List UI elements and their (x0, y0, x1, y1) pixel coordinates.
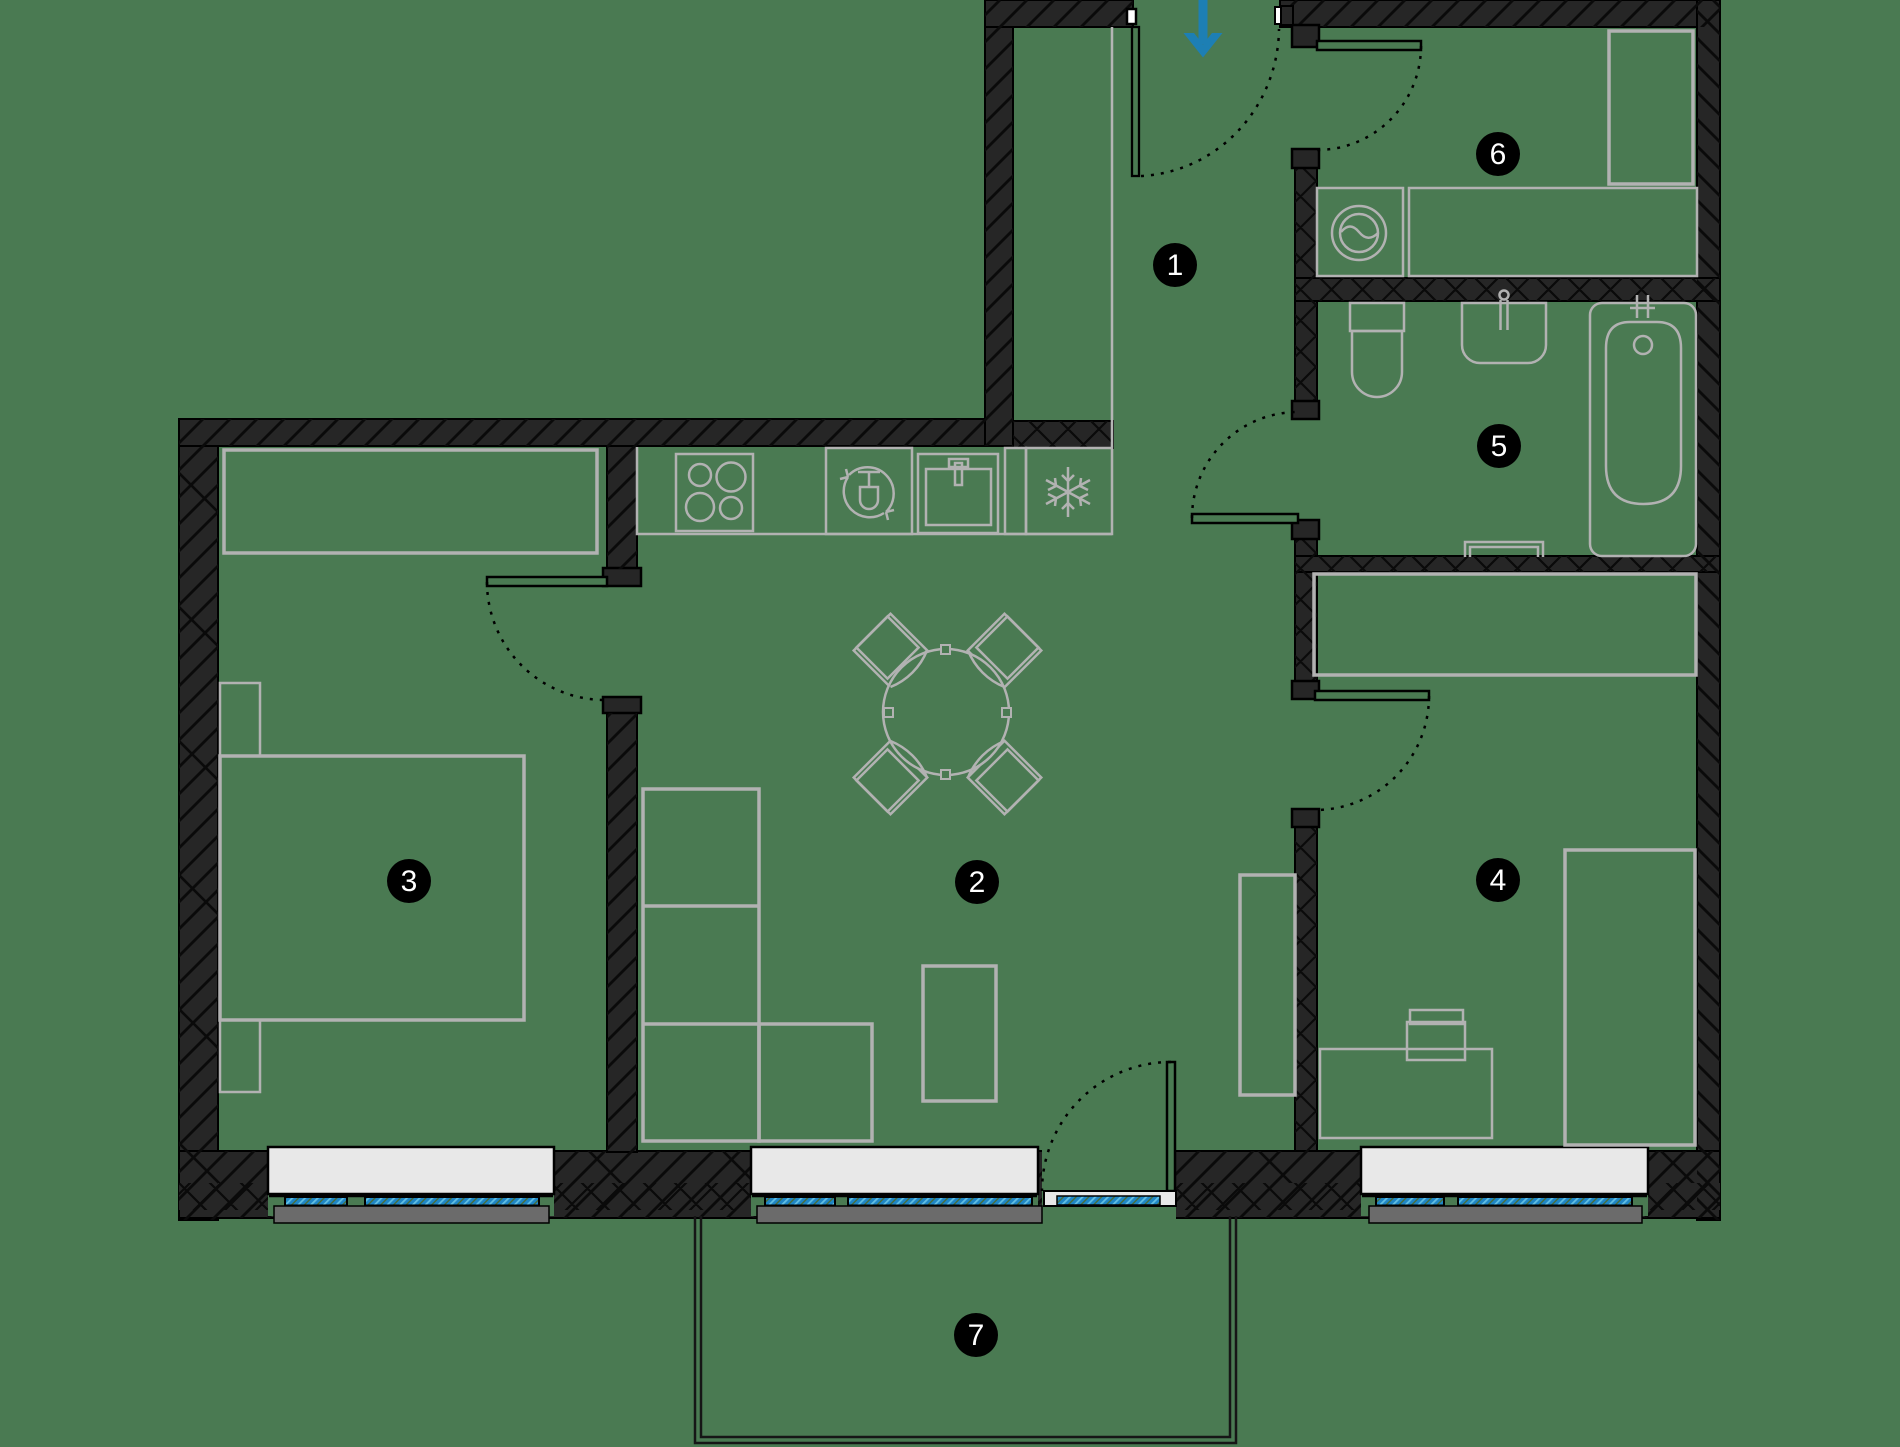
svg-text:2: 2 (969, 866, 986, 899)
svg-text:6: 6 (1490, 138, 1507, 171)
svg-text:7: 7 (968, 1319, 985, 1352)
svg-text:4: 4 (1490, 864, 1507, 897)
svg-text:5: 5 (1491, 430, 1508, 463)
svg-text:1: 1 (1167, 249, 1184, 282)
svg-text:3: 3 (401, 865, 418, 898)
